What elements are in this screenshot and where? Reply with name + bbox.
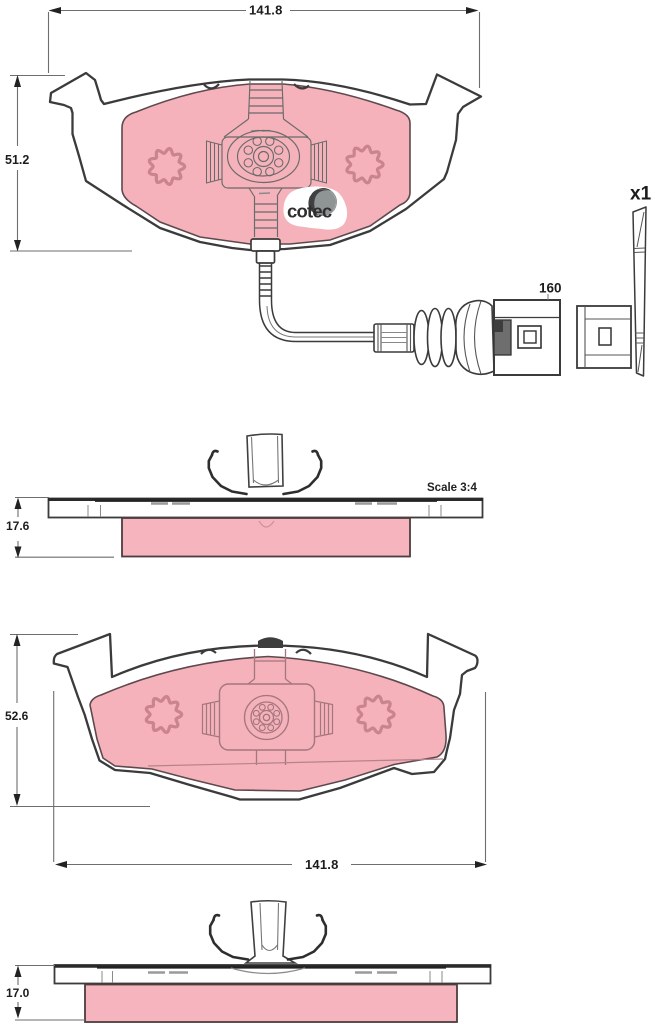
svg-text:141.8: 141.8 — [249, 3, 283, 18]
svg-text:141.8: 141.8 — [305, 857, 339, 872]
svg-text:cotec: cotec — [287, 201, 332, 222]
svg-text:160: 160 — [539, 281, 562, 296]
svg-text:17.6: 17.6 — [6, 519, 30, 533]
svg-text:x1: x1 — [630, 184, 652, 205]
svg-text:Scale 3:4: Scale 3:4 — [427, 482, 477, 494]
svg-text:52.6: 52.6 — [5, 709, 29, 723]
svg-text:17.0: 17.0 — [6, 986, 30, 1000]
svg-text:51.2: 51.2 — [5, 153, 29, 167]
